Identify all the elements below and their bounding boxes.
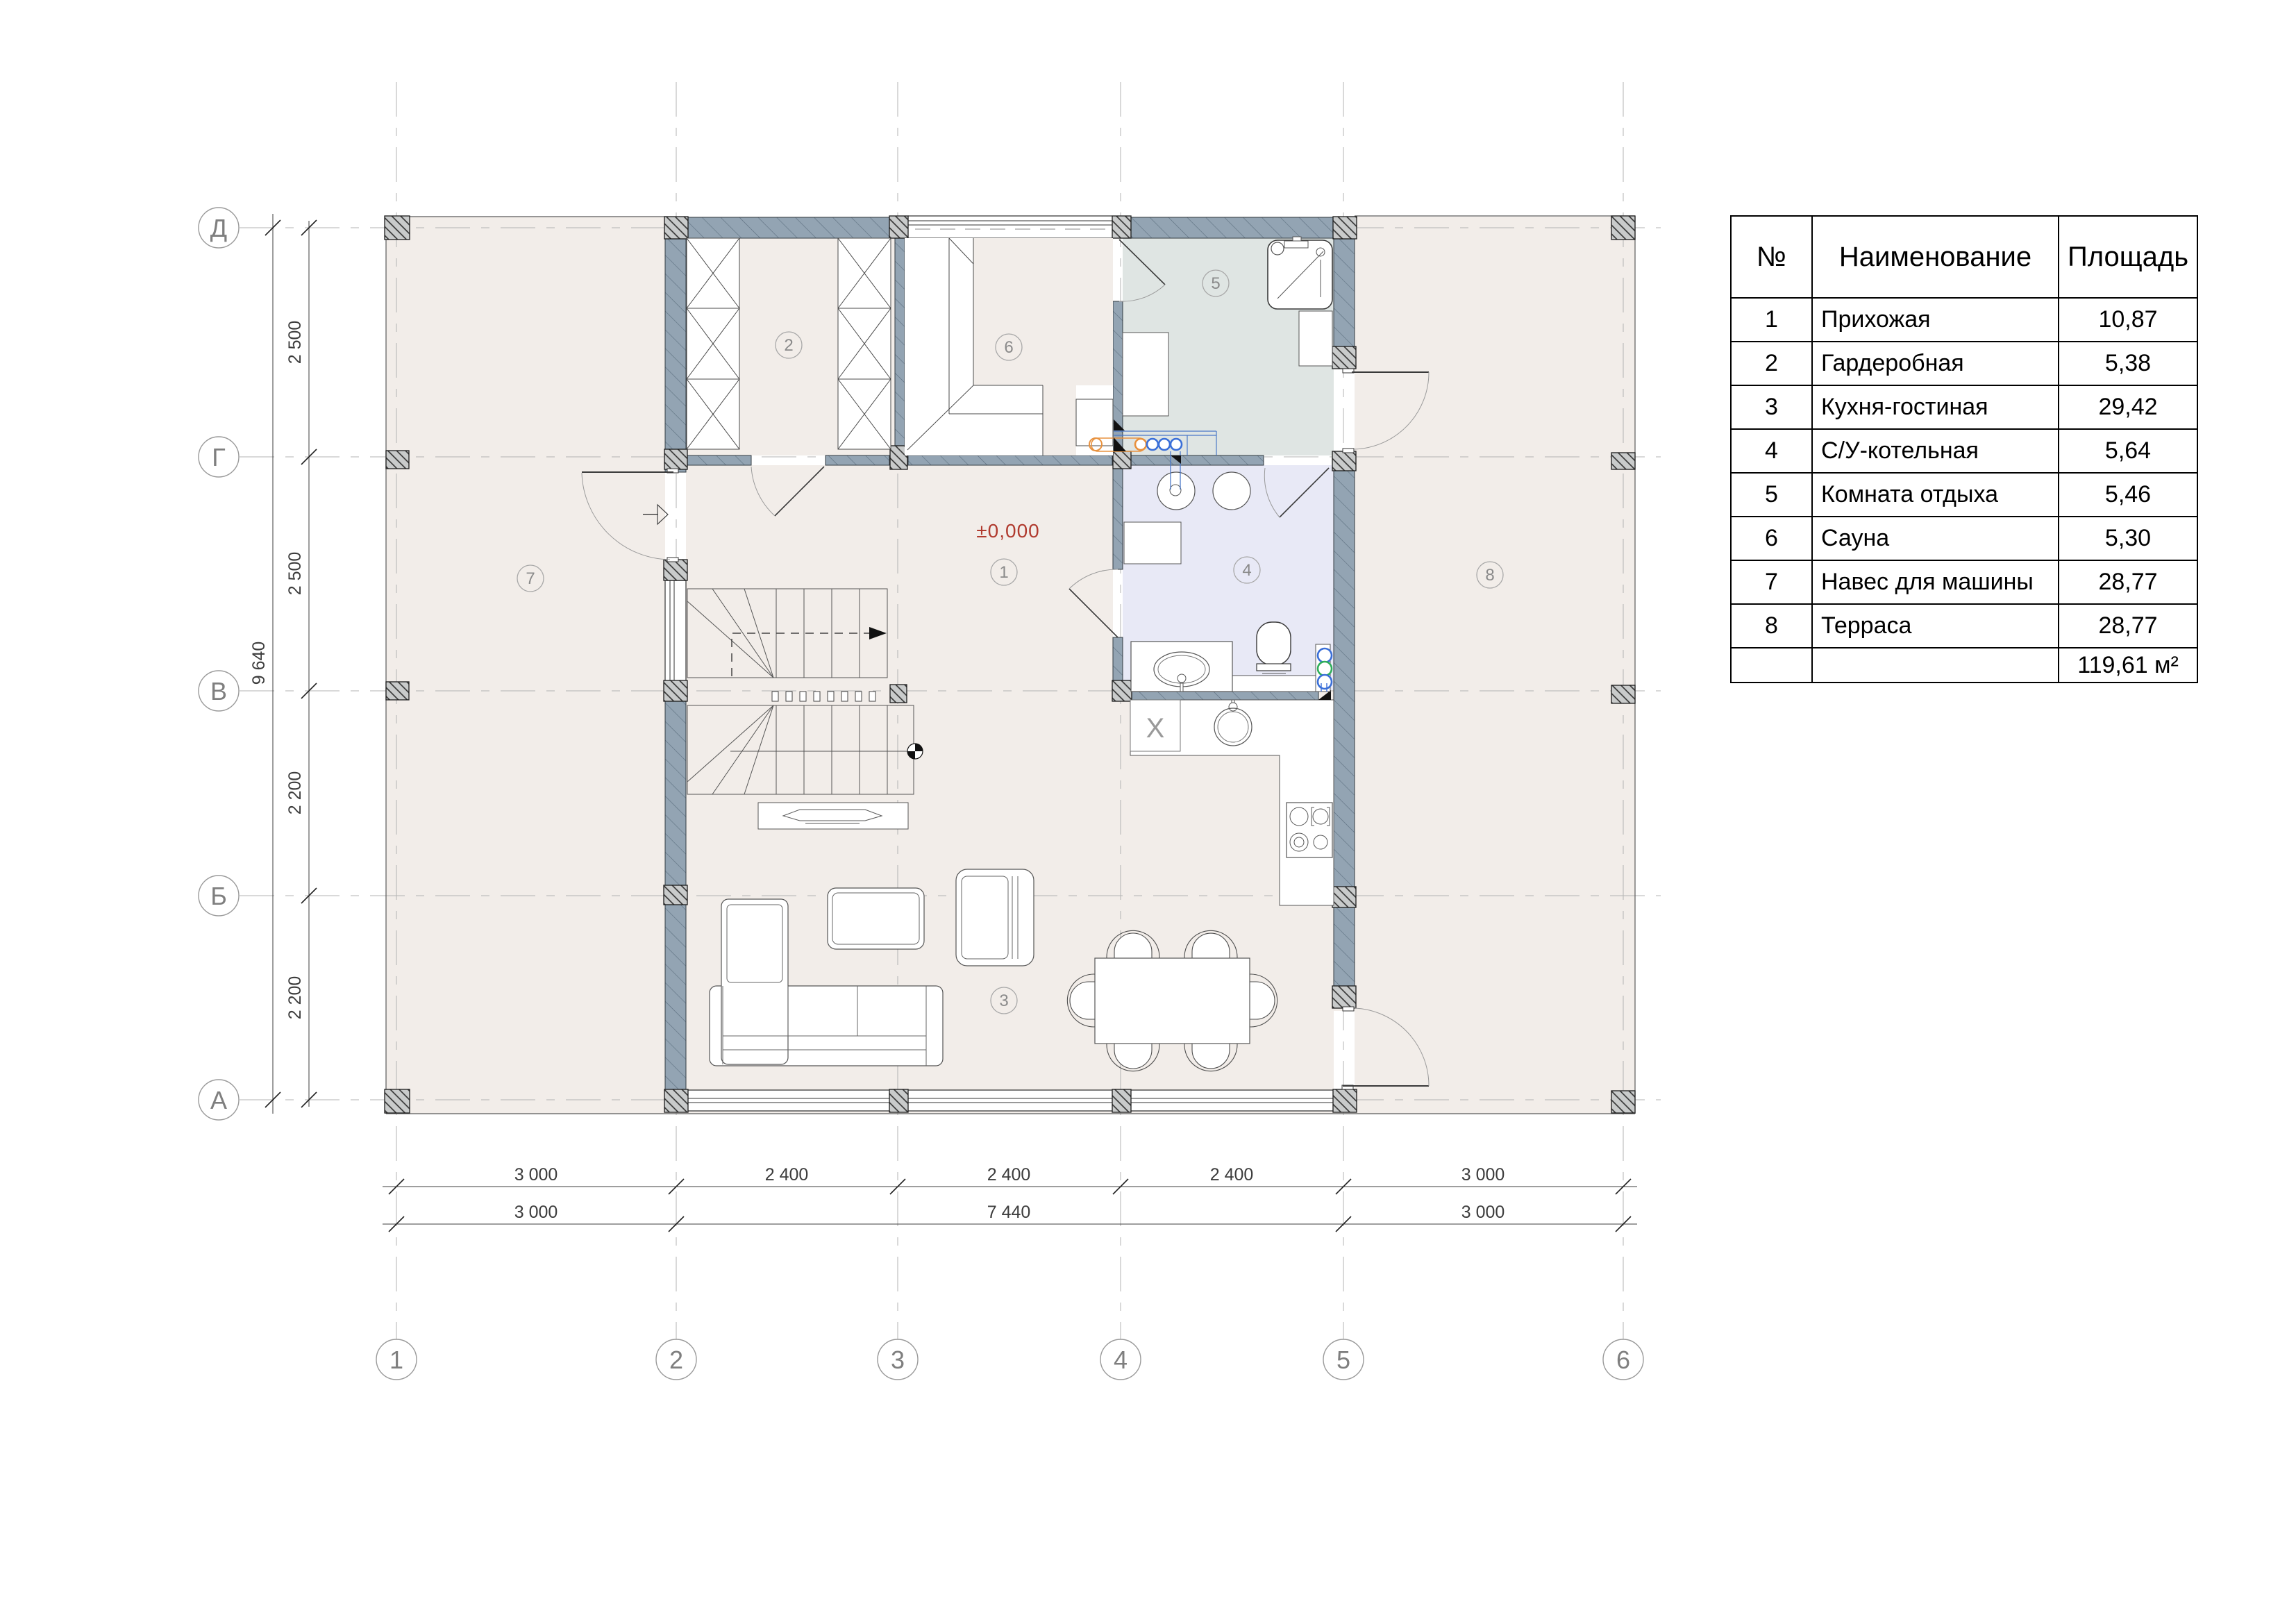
svg-text:8: 8: [1485, 566, 1494, 585]
svg-text:3 000: 3 000: [514, 1165, 558, 1184]
svg-text:5: 5: [1211, 274, 1220, 293]
svg-text:3: 3: [891, 1346, 905, 1374]
svg-text:Д: Д: [210, 214, 227, 242]
svg-text:1: 1: [999, 563, 1008, 582]
svg-text:2 400: 2 400: [987, 1165, 1031, 1184]
svg-text:3 000: 3 000: [514, 1203, 558, 1222]
svg-text:Г: Г: [212, 443, 226, 471]
svg-text:2: 2: [784, 336, 793, 355]
svg-text:7: 7: [526, 569, 535, 588]
svg-text:3: 3: [999, 991, 1008, 1010]
svg-text:6: 6: [1616, 1346, 1630, 1374]
svg-text:±0,000: ±0,000: [976, 520, 1039, 542]
svg-text:2 500: 2 500: [285, 321, 305, 365]
svg-text:В: В: [210, 677, 227, 705]
svg-text:4: 4: [1242, 561, 1251, 580]
svg-text:2 200: 2 200: [285, 976, 305, 1020]
svg-text:2 400: 2 400: [1210, 1165, 1254, 1184]
svg-text:6: 6: [1004, 338, 1013, 357]
svg-text:2 500: 2 500: [285, 552, 305, 596]
svg-text:3 000: 3 000: [1461, 1165, 1505, 1184]
svg-text:7 440: 7 440: [987, 1203, 1031, 1222]
svg-text:5: 5: [1336, 1346, 1350, 1374]
svg-text:2 400: 2 400: [765, 1165, 809, 1184]
svg-text:2: 2: [669, 1346, 683, 1374]
svg-text:2 200: 2 200: [285, 771, 305, 815]
svg-text:X: X: [1146, 713, 1165, 744]
svg-text:3 000: 3 000: [1461, 1203, 1505, 1222]
svg-text:1: 1: [389, 1346, 403, 1374]
svg-text:9 640: 9 640: [249, 642, 269, 685]
svg-text:4: 4: [1114, 1346, 1128, 1374]
svg-text:Б: Б: [210, 882, 227, 910]
svg-text:А: А: [210, 1086, 227, 1114]
